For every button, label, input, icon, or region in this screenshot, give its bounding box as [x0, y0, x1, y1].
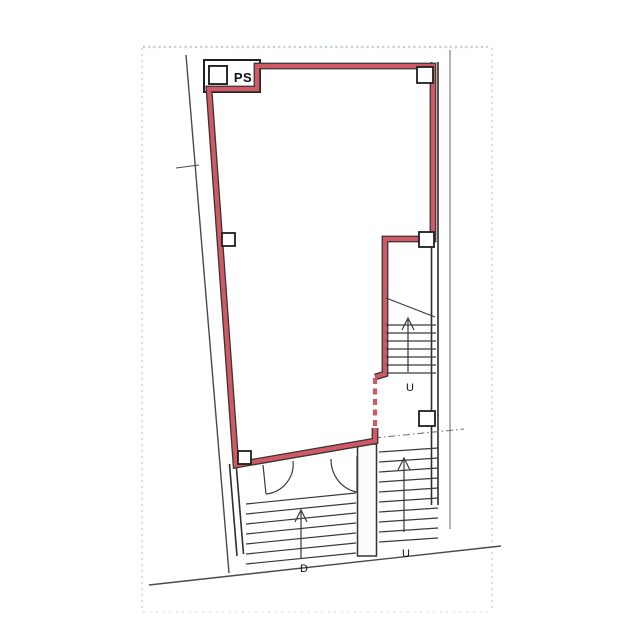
- lease-boundary-line: [209, 66, 433, 465]
- stair-direction-label-lower-right: U: [402, 548, 410, 560]
- column-marker-top-right: [417, 67, 433, 83]
- column-marker-right-mid: [419, 232, 434, 247]
- columns: [209, 66, 435, 464]
- column-marker-right-lower: [419, 411, 435, 426]
- stair-break-line: [386, 298, 435, 317]
- stair-divider-wall: [358, 444, 377, 556]
- door-leaf-left: [263, 465, 266, 494]
- lease-boundary: [209, 66, 433, 465]
- stair-direction-label-upper: U: [406, 382, 414, 394]
- stair-treads-lower-right: [379, 448, 438, 542]
- stair-direction-label-lower-left: D: [300, 563, 308, 575]
- door-swing-arc-left: [266, 461, 293, 494]
- floor-plan-canvas: U U D PS: [0, 0, 640, 640]
- door-swing-arc-right: [331, 459, 357, 492]
- stair-run-upper: U: [386, 298, 436, 394]
- stair-run-lower-left: D: [246, 493, 356, 575]
- ps-shaft-square: [209, 66, 227, 84]
- column-marker-left-mid: [222, 233, 235, 246]
- column-marker-bottom-left: [238, 451, 251, 464]
- street-edge-line: [149, 546, 501, 585]
- left-wall-lower-inner: [236, 463, 244, 554]
- left-wall-lower-outer: [230, 464, 238, 556]
- lease-boundary-casing: [209, 66, 433, 465]
- stair-run-lower-right: U: [379, 448, 438, 560]
- ps-label: PS: [234, 70, 252, 85]
- stair-treads-upper: [386, 325, 436, 373]
- floor-plan-drawing: U U D PS: [0, 0, 640, 640]
- entry-doors: [263, 456, 357, 494]
